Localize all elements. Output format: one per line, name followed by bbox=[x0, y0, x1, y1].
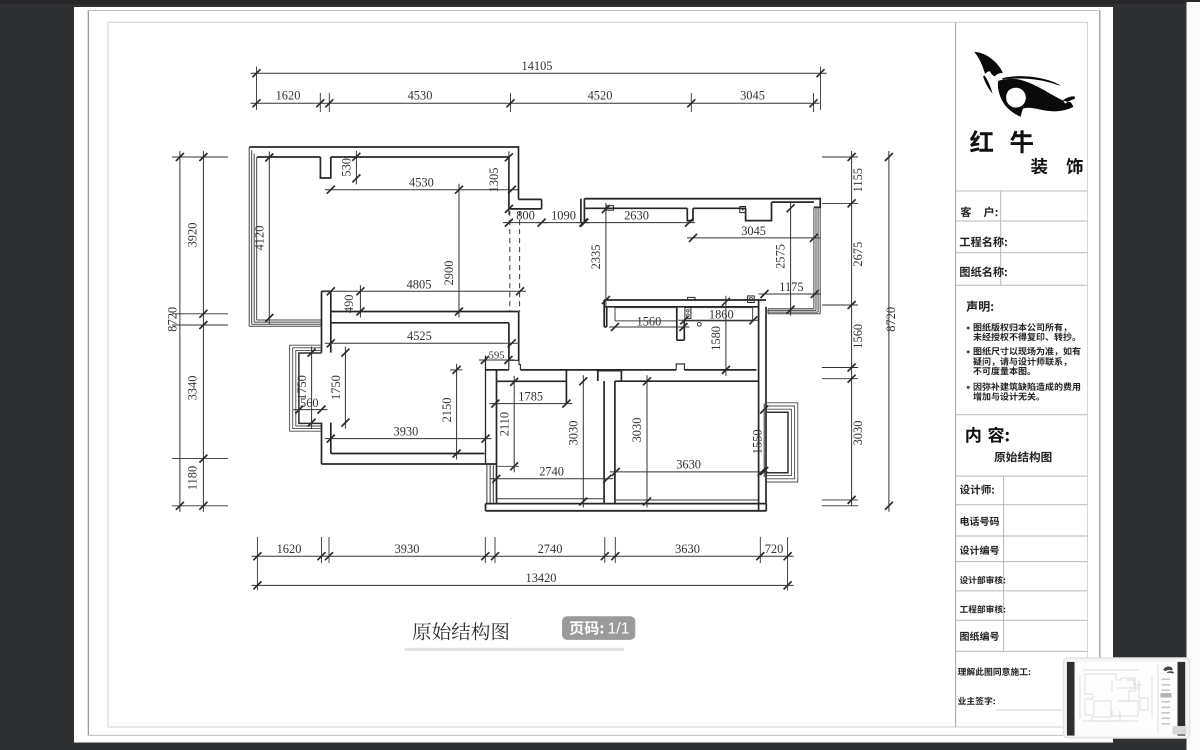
svg-text:3920: 3920 bbox=[186, 223, 200, 248]
svg-text:1155: 1155 bbox=[851, 168, 865, 192]
svg-text:2675: 2675 bbox=[851, 242, 865, 267]
svg-text:1750: 1750 bbox=[329, 375, 343, 400]
svg-text:1175: 1175 bbox=[779, 280, 803, 294]
svg-text:720: 720 bbox=[765, 542, 784, 556]
svg-text:3045: 3045 bbox=[741, 224, 766, 238]
svg-text:14105: 14105 bbox=[522, 59, 553, 73]
svg-text:1580: 1580 bbox=[709, 326, 723, 351]
svg-text:1550: 1550 bbox=[751, 429, 765, 454]
svg-text:4520: 4520 bbox=[588, 89, 613, 103]
svg-text:595: 595 bbox=[489, 350, 505, 361]
svg-text:1305: 1305 bbox=[487, 168, 501, 193]
svg-text:490: 490 bbox=[342, 295, 356, 314]
svg-text:530: 530 bbox=[340, 158, 354, 177]
svg-text:8720: 8720 bbox=[166, 307, 180, 332]
svg-text:2110: 2110 bbox=[497, 412, 511, 436]
svg-text:3030: 3030 bbox=[851, 421, 865, 446]
svg-text:1620: 1620 bbox=[277, 542, 302, 556]
svg-text:3030: 3030 bbox=[630, 418, 644, 443]
svg-text:4530: 4530 bbox=[408, 89, 433, 103]
svg-text:3340: 3340 bbox=[186, 376, 200, 401]
svg-text:3630: 3630 bbox=[675, 542, 700, 556]
svg-text:1/1: 1/1 bbox=[608, 621, 630, 638]
svg-text:8720: 8720 bbox=[884, 307, 898, 332]
svg-text:1090: 1090 bbox=[551, 208, 576, 222]
svg-text:4805: 4805 bbox=[407, 277, 432, 291]
svg-text:800: 800 bbox=[516, 208, 535, 222]
svg-text:4530: 4530 bbox=[409, 175, 434, 189]
svg-text:2630: 2630 bbox=[624, 208, 649, 222]
svg-text:3045: 3045 bbox=[740, 89, 765, 103]
svg-text:1180: 1180 bbox=[186, 466, 200, 490]
svg-text:3630: 3630 bbox=[676, 458, 701, 472]
svg-text:4525: 4525 bbox=[407, 329, 432, 343]
svg-text:2740: 2740 bbox=[539, 465, 564, 479]
svg-text:3030: 3030 bbox=[567, 421, 581, 446]
svg-text:13420: 13420 bbox=[526, 571, 557, 585]
svg-text:3930: 3930 bbox=[395, 542, 420, 556]
svg-text:2335: 2335 bbox=[589, 245, 603, 270]
svg-text:1620: 1620 bbox=[276, 89, 301, 103]
svg-text:2900: 2900 bbox=[442, 261, 456, 286]
svg-text:2740: 2740 bbox=[538, 542, 563, 556]
svg-text:1860: 1860 bbox=[709, 308, 734, 322]
svg-text:4120: 4120 bbox=[253, 226, 267, 251]
svg-text:2150: 2150 bbox=[440, 398, 454, 423]
svg-text:2575: 2575 bbox=[774, 244, 788, 269]
svg-text:1785: 1785 bbox=[518, 389, 543, 403]
svg-text:1560: 1560 bbox=[851, 324, 865, 349]
svg-text:1560: 1560 bbox=[637, 315, 662, 329]
svg-text:3930: 3930 bbox=[394, 425, 419, 439]
svg-text:560: 560 bbox=[300, 396, 319, 410]
